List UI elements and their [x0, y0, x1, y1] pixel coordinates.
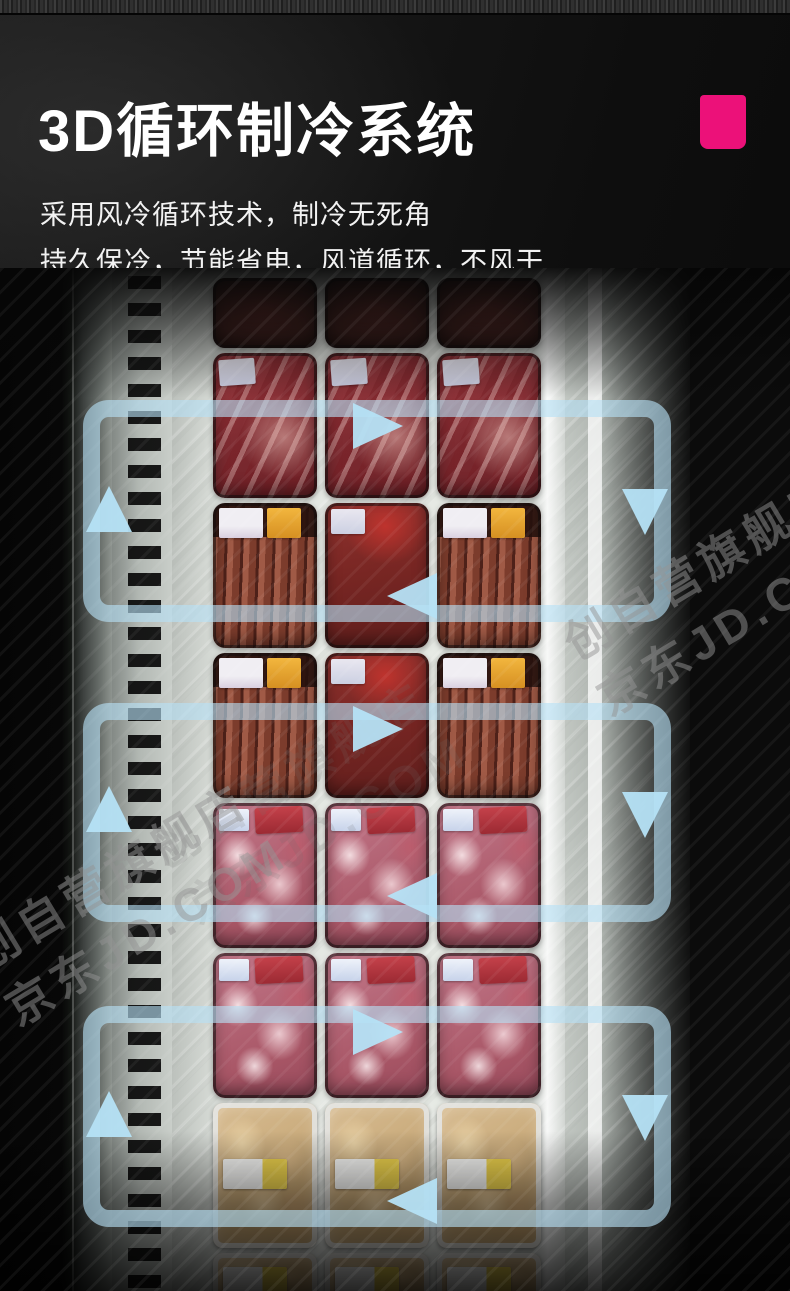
top-shadow-gradient	[0, 268, 790, 398]
arrow-up-icon	[86, 1091, 132, 1137]
arrow-left-icon	[387, 573, 437, 619]
arrow-left-icon	[387, 1178, 437, 1224]
promo-banner: 3D循环制冷系统 采用风冷循环技术，制冷无死角 持久保冷，节能省电，风道循环，不…	[0, 0, 790, 1291]
fridge-interior-photo: 创自营旗舰店 京东JD.COM 创自营旗舰店 京东JD.COM 创自营旗舰店	[0, 268, 790, 1291]
arrow-right-icon	[353, 403, 403, 449]
arrow-right-icon	[353, 1009, 403, 1055]
arrow-down-icon	[622, 1095, 668, 1141]
arrow-up-icon	[86, 486, 132, 532]
arrow-left-icon	[387, 873, 437, 919]
airflow-loop	[83, 400, 671, 622]
accent-square	[700, 95, 746, 149]
arrow-right-icon	[353, 706, 403, 752]
airflow-loop	[83, 1006, 671, 1227]
arrow-down-icon	[622, 489, 668, 535]
arrow-down-icon	[622, 792, 668, 838]
arrow-up-icon	[86, 786, 132, 832]
subtitle-line-1: 采用风冷循环技术，制冷无死角	[40, 193, 432, 232]
page-title: 3D循环制冷系统	[38, 84, 476, 168]
header: 3D循环制冷系统 采用风冷循环技术，制冷无死角 持久保冷，节能省电，风道循环，不…	[0, 0, 790, 268]
